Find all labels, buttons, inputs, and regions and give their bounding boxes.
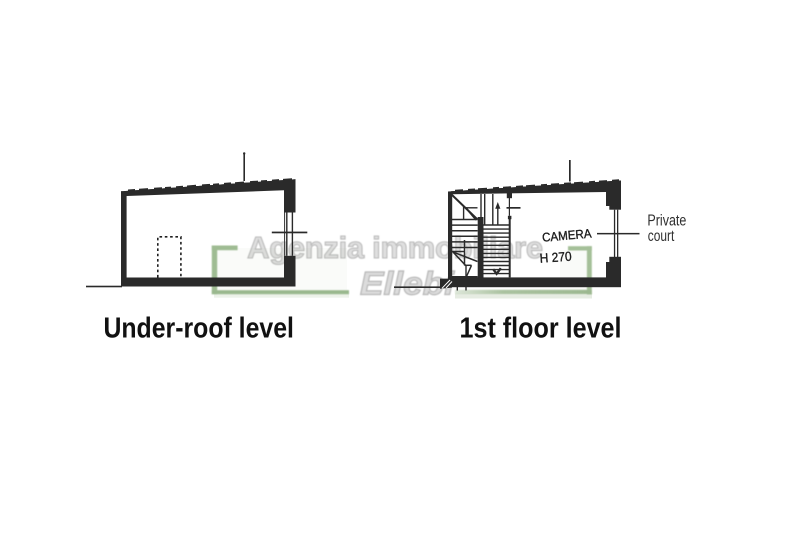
svg-text:Under-roof level: Under-roof level xyxy=(103,312,294,344)
svg-text:1st floor level: 1st floor level xyxy=(460,312,622,344)
svg-text:court: court xyxy=(648,228,675,245)
svg-text:CAMERA: CAMERA xyxy=(542,226,593,244)
svg-text:H 270: H 270 xyxy=(539,249,572,266)
